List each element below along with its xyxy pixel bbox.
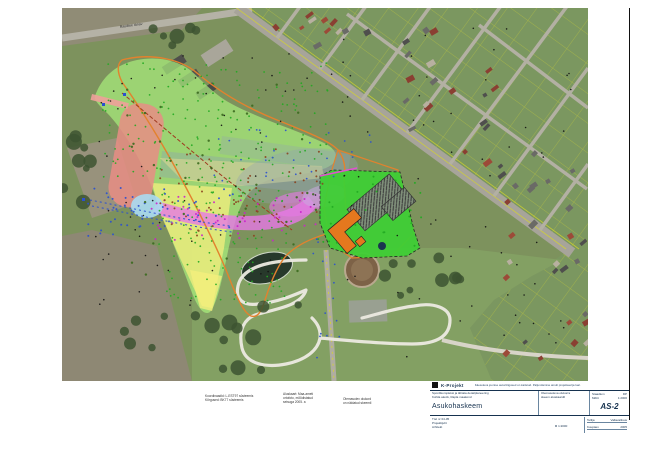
drawing-number: AS-2 [592,402,627,411]
copyright-note: Käesoleva joonise autoriõigused on kaits… [475,383,581,387]
project-title-cell: Spordikompleksi ja lähiala detailplaneer… [430,391,538,415]
title-block-main-row: Spordikompleksi ja lähiala detailplaneer… [430,391,629,416]
site-plan-map: Raudtee tänav [62,8,588,381]
sheet-description-cell: Olemasoleva olukorra skeem aluskaardil [538,391,589,415]
project-location: Kohila alevik, Rapla maakond [432,396,536,400]
client-cell: Tellija Vallavalitsus Kuupäev 2005 [584,417,629,433]
client-value: Vallavalitsus [611,418,627,422]
client-label: Tellija [587,418,595,422]
aerial-overlay-canvas: Raudtee tänav [62,8,588,381]
scale-note-cell: M 1:2000 [538,417,584,433]
drawing-sheet: Raudtee tänav [0,0,650,459]
date-label: Kuupäev [587,425,599,429]
sheet-border-line [629,8,630,420]
scale-value: 1:2000 [618,396,627,400]
title-block: K-Projekt Käesoleva joonise autoriõiguse… [430,381,629,433]
company-name: K-Projekt [441,383,464,388]
stage-and-number-cell: Staadium DP Mõõt 1:2000 AS-2 [589,391,629,415]
zone-lightblue [131,194,163,218]
map-note-basemap: Aluskaart: Maa-ameti ortofoto, mõõdistat… [283,392,313,404]
scale-note: M 1:2000 [538,425,584,429]
title-block-header-row: K-Projekt Käesoleva joonise autoriõiguse… [430,381,629,391]
company-logo [432,382,438,388]
map-note-coordinates: Koordinaadid: L-EST97 süsteemis Kõrgused… [205,394,253,402]
sheet-description-line2: skeem aluskaardil [541,396,587,400]
parking-area [349,299,388,322]
work-info-cell: Töö nr 04-05 Projektijuht Arhitekt [430,417,538,433]
facility-pond [378,242,386,250]
title-block-bottom-row: Töö nr 04-05 Projektijuht Arhitekt M 1:2… [430,416,629,433]
map-note-situation: Olemasolev olukord on näidatud skeemil [343,397,371,405]
architect-label: Arhitekt [432,426,536,430]
date-value: 2005 [620,425,627,429]
scale-label: Mõõt [592,396,599,400]
sheet-title: Asukohaskeem [432,403,536,410]
